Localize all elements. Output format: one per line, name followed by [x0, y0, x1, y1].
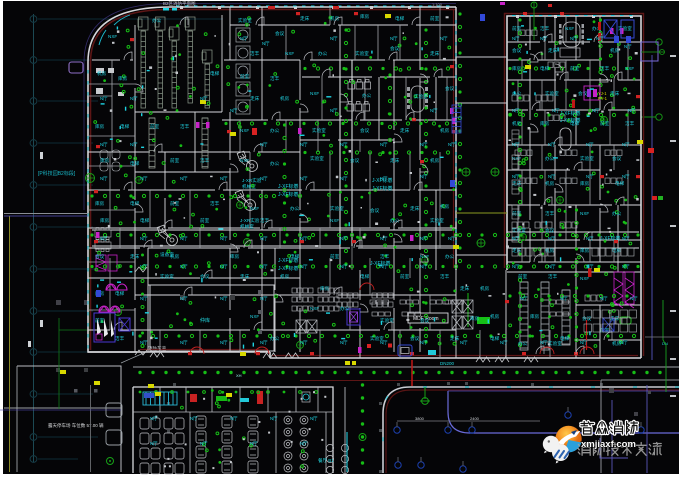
svg-text:N厅: N厅 — [630, 296, 638, 301]
svg-text:N厅: N厅 — [250, 441, 258, 446]
svg-text:N厅: N厅 — [624, 44, 632, 49]
svg-text:NXF: NXF — [565, 26, 574, 31]
svg-text:N厅: N厅 — [300, 176, 308, 181]
svg-text:N厅: N厅 — [622, 142, 630, 147]
svg-text:N厅: N厅 — [448, 236, 456, 241]
svg-text:N厅: N厅 — [140, 296, 148, 301]
svg-text:库房: 库房 — [530, 313, 540, 320]
svg-text:会议: 会议 — [410, 335, 420, 342]
svg-text:N厅: N厅 — [622, 174, 630, 179]
svg-text:N厅: N厅 — [622, 236, 630, 241]
svg-text:实验室: 实验室 — [355, 50, 369, 57]
svg-text:N厅: N厅 — [440, 36, 448, 41]
svg-text:N厅: N厅 — [100, 96, 108, 101]
svg-text:N厅: N厅 — [262, 41, 270, 46]
svg-text:N厅: N厅 — [586, 236, 594, 241]
svg-text:办公: 办公 — [445, 253, 455, 260]
svg-text:N厅: N厅 — [380, 142, 388, 147]
svg-text:走床: 走床 — [130, 253, 140, 260]
svg-text:会议: 会议 — [545, 227, 555, 234]
svg-text:N厅: N厅 — [300, 264, 308, 269]
svg-text:N厅: N厅 — [100, 176, 108, 181]
svg-text:办公: 办公 — [340, 305, 350, 312]
svg-text:会议: 会议 — [275, 30, 285, 37]
svg-text:N厅: N厅 — [512, 174, 520, 179]
svg-text:机房: 机房 — [170, 253, 180, 260]
svg-text:NXF: NXF — [625, 66, 634, 71]
svg-text:洁丰: 洁丰 — [600, 65, 610, 72]
svg-text:库房: 库房 — [470, 315, 480, 322]
svg-text:N厅: N厅 — [180, 340, 188, 345]
svg-text:电梯: 电梯 — [120, 123, 130, 130]
svg-text:办公: 办公 — [512, 90, 522, 97]
svg-text:J-XR实验: J-XR实验 — [242, 177, 262, 184]
svg-text:N厅: N厅 — [140, 340, 148, 345]
svg-text:前室: 前室 — [512, 210, 522, 217]
svg-text:机房: 机房 — [480, 285, 490, 292]
svg-text:机房: 机房 — [440, 127, 450, 134]
svg-text:NXF: NXF — [240, 158, 249, 163]
svg-text:电梯: 电梯 — [615, 180, 625, 187]
svg-text:实验室: 实验室 — [238, 17, 252, 24]
svg-text:办公: 办公 — [290, 205, 300, 212]
svg-text:N厅: N厅 — [596, 36, 604, 41]
svg-text:N厅: N厅 — [260, 296, 268, 301]
svg-text:2400: 2400 — [470, 416, 480, 421]
svg-text:N厅: N厅 — [300, 236, 308, 241]
svg-text:XH: XH — [236, 373, 242, 378]
svg-text:N厅: N厅 — [130, 142, 138, 147]
svg-text:露天停车场 车位数 57.00 辆: 露天停车场 车位数 57.00 辆 — [48, 422, 104, 429]
svg-text:N厅: N厅 — [200, 441, 208, 446]
svg-text:DN200: DN200 — [440, 361, 455, 366]
svg-text:N厅: N厅 — [600, 296, 608, 301]
svg-text:办公: 办公 — [612, 210, 622, 217]
svg-text:洁丰: 洁丰 — [200, 157, 210, 164]
svg-text:N厅: N厅 — [540, 340, 548, 345]
svg-text:N厅: N厅 — [260, 176, 268, 181]
svg-text:会议: 会议 — [420, 317, 430, 324]
svg-text:机房: 机房 — [545, 180, 555, 187]
svg-text:走床: 走床 — [250, 95, 260, 102]
svg-text:J-XF标碁: J-XF标碁 — [278, 257, 299, 264]
svg-text:N厅: N厅 — [340, 176, 348, 181]
svg-text:走床: 走床 — [460, 285, 470, 292]
svg-text:N厅: N厅 — [260, 236, 268, 241]
svg-text:N厅: N厅 — [240, 36, 248, 41]
svg-text:N厅: N厅 — [586, 264, 594, 269]
svg-text:库房: 库房 — [320, 285, 330, 292]
svg-text:N厅: N厅 — [512, 236, 520, 241]
svg-text:N厅: N厅 — [180, 264, 188, 269]
svg-text:PY-1: PY-1 — [598, 96, 608, 101]
svg-text:走床: 走床 — [410, 205, 420, 212]
svg-text:N厅: N厅 — [420, 340, 428, 345]
svg-text:库房: 库房 — [540, 120, 550, 127]
svg-text:会议: 会议 — [95, 253, 105, 260]
svg-text:NXF: NXF — [310, 91, 319, 96]
svg-text:实验室: 实验室 — [545, 90, 559, 97]
svg-text:N厅: N厅 — [620, 340, 628, 345]
svg-text:N厅: N厅 — [150, 416, 158, 421]
svg-text:NXF: NXF — [250, 206, 259, 211]
svg-text:会议: 会议 — [578, 90, 588, 97]
svg-text:NXF: NXF — [250, 314, 259, 319]
svg-text:N厅: N厅 — [570, 36, 578, 41]
svg-text:会议: 会议 — [360, 127, 370, 134]
svg-text:前室: 前室 — [600, 120, 610, 127]
svg-text:[P科技园B2标段]: [P科技园B2标段] — [38, 170, 76, 177]
svg-text:洁丰: 洁丰 — [270, 75, 280, 82]
svg-text:机房: 机房 — [610, 47, 620, 54]
svg-text:N厅: N厅 — [230, 416, 238, 421]
svg-text:实验室: 实验室 — [548, 340, 562, 347]
svg-text:N厅: N厅 — [140, 176, 148, 181]
svg-text:N厅: N厅 — [380, 340, 388, 345]
svg-text:N厅: N厅 — [548, 142, 556, 147]
svg-text:办公: 办公 — [270, 127, 280, 134]
svg-text:前室: 前室 — [240, 73, 250, 80]
svg-text:N厅: N厅 — [380, 176, 388, 181]
svg-text:前室: 前室 — [518, 273, 528, 280]
svg-text:库房: 库房 — [95, 200, 105, 207]
svg-text:走床: 走床 — [548, 47, 558, 54]
svg-text:N厅: N厅 — [622, 264, 630, 269]
svg-text:N厅: N厅 — [200, 96, 208, 101]
svg-text:办公: 办公 — [270, 160, 280, 167]
svg-text:N厅: N厅 — [580, 340, 588, 345]
svg-text:N厅: N厅 — [586, 142, 594, 147]
svg-text:办公: 办公 — [362, 92, 372, 99]
svg-text:走床: 走床 — [430, 50, 440, 57]
svg-text:N厅: N厅 — [512, 36, 520, 41]
svg-text:洁丰: 洁丰 — [180, 123, 190, 130]
svg-text:N厅: N厅 — [448, 142, 456, 147]
svg-text:走床: 走床 — [390, 157, 400, 164]
svg-text:J-XF标碁: J-XF标碁 — [560, 110, 581, 117]
svg-text:N厅: N厅 — [260, 340, 268, 345]
svg-text:N厅: N厅 — [420, 174, 428, 179]
svg-text:N厅: N厅 — [330, 36, 338, 41]
svg-text:电梯: 电梯 — [140, 217, 150, 224]
svg-text:N厅: N厅 — [540, 36, 548, 41]
svg-text:前室: 前室 — [170, 157, 180, 164]
svg-text:洁丰: 洁丰 — [540, 25, 550, 32]
svg-text:前室: 前室 — [330, 253, 340, 260]
svg-text:走床: 走床 — [512, 180, 522, 187]
svg-text:会议: 会议 — [350, 157, 360, 164]
svg-text:洁丰: 洁丰 — [250, 50, 260, 57]
svg-text:NXF: NXF — [240, 128, 249, 133]
svg-text:库房: 库房 — [360, 13, 370, 20]
svg-text:前室: 前室 — [512, 25, 522, 32]
svg-text:N厅: N厅 — [100, 236, 108, 241]
svg-text:机房: 机房 — [430, 157, 440, 164]
svg-text:NXF: NXF — [420, 254, 429, 259]
svg-text:仲库: 仲库 — [200, 317, 210, 324]
svg-text:J-XF标碁: J-XF标碁 — [560, 117, 581, 124]
svg-text:走床: 走床 — [300, 15, 310, 22]
svg-text:库房: 库房 — [100, 157, 110, 164]
svg-text:机房: 机房 — [440, 203, 450, 210]
svg-text:N厅: N厅 — [430, 108, 438, 113]
svg-text:实验室: 实验室 — [414, 93, 428, 100]
svg-text:办公: 办公 — [318, 50, 328, 57]
svg-text:机房: 机房 — [512, 120, 522, 127]
svg-text:机房: 机房 — [490, 313, 500, 320]
svg-text:洁丰: 洁丰 — [545, 210, 555, 217]
svg-text:库房: 库房 — [512, 65, 522, 72]
svg-text:NXF: NXF — [580, 211, 589, 216]
svg-text:NXF: NXF — [310, 306, 319, 311]
svg-text:N厅: N厅 — [130, 96, 138, 101]
svg-text:N厅: N厅 — [180, 176, 188, 181]
svg-text:会议: 会议 — [390, 45, 400, 52]
svg-text:前室: 前室 — [95, 317, 105, 324]
svg-text:N厅: N厅 — [190, 416, 198, 421]
svg-text:1:100: 1:100 — [432, 2, 443, 7]
svg-text:库房: 库房 — [580, 180, 590, 187]
svg-text:N厅: N厅 — [520, 296, 528, 301]
svg-text:N厅: N厅 — [340, 340, 348, 345]
svg-text:电梯: 电梯 — [560, 335, 570, 342]
svg-text:N厅: N厅 — [220, 236, 228, 241]
svg-text:N厅: N厅 — [340, 236, 348, 241]
svg-text:电梯: 电梯 — [115, 290, 125, 297]
svg-text:N厅: N厅 — [420, 264, 428, 269]
svg-text:N厅: N厅 — [548, 236, 556, 241]
svg-text:N厅: N厅 — [300, 142, 308, 147]
svg-text:会议: 会议 — [445, 85, 455, 92]
svg-text:餐厅 B1: 餐厅 B1 — [318, 457, 334, 464]
svg-text:N厅: N厅 — [220, 296, 228, 301]
svg-text:N厅: N厅 — [220, 176, 228, 181]
svg-text:电梯: 电梯 — [360, 273, 370, 280]
svg-text:xmjiaxf.com: xmjiaxf.com — [581, 439, 636, 450]
svg-text:N厅: N厅 — [270, 416, 278, 421]
svg-text:库房: 库房 — [230, 253, 240, 260]
svg-text:3800: 3800 — [415, 416, 425, 421]
svg-text:N厅: N厅 — [100, 142, 108, 147]
svg-text:前室: 前室 — [430, 15, 440, 22]
svg-text:办公: 办公 — [152, 17, 162, 24]
svg-text:会议: 会议 — [512, 47, 522, 54]
svg-text:N厅: N厅 — [512, 108, 520, 113]
svg-text:N厅: N厅 — [628, 108, 636, 113]
svg-text:N厅: N厅 — [330, 108, 338, 113]
svg-text:N厅: N厅 — [420, 236, 428, 241]
svg-text:N厅: N厅 — [460, 340, 468, 345]
svg-text:走床: 走床 — [450, 335, 460, 342]
svg-text:N厅: N厅 — [260, 264, 268, 269]
svg-text:N厅: N厅 — [420, 142, 428, 147]
svg-text:实验室: 实验室 — [310, 155, 324, 162]
svg-text:J-XF标碁: J-XF标碁 — [278, 265, 299, 272]
svg-text:电梯: 电梯 — [540, 65, 550, 72]
svg-text:N厅: N厅 — [300, 441, 308, 446]
svg-text:前室: 前室 — [150, 123, 160, 130]
svg-text:实验室: 实验室 — [160, 273, 174, 280]
svg-text:前室: 前室 — [400, 273, 410, 280]
svg-text:洁丰: 洁丰 — [210, 200, 220, 207]
svg-text:N厅: N厅 — [300, 340, 308, 345]
svg-text:N厅: N厅 — [560, 296, 568, 301]
svg-text:洁丰: 洁丰 — [260, 217, 270, 224]
svg-text:前室: 前室 — [570, 65, 580, 72]
svg-text:实验室: 实验室 — [430, 217, 444, 224]
svg-text:会议: 会议 — [612, 155, 622, 162]
svg-text:电梯: 电梯 — [395, 15, 405, 22]
svg-text:洁丰: 洁丰 — [625, 120, 635, 127]
svg-text:B2区消防平面图: B2区消防平面图 — [163, 0, 196, 7]
svg-text:库房: 库房 — [118, 75, 128, 82]
svg-text:N厅: N厅 — [548, 264, 556, 269]
svg-text:NXF: NXF — [285, 51, 294, 56]
svg-text:N厅: N厅 — [552, 108, 560, 113]
svg-text:电梯: 电梯 — [210, 70, 220, 77]
svg-text:N厅: N厅 — [592, 108, 600, 113]
svg-text:J-XF标碁: J-XF标碁 — [278, 191, 299, 198]
svg-text:洁丰: 洁丰 — [380, 253, 390, 260]
svg-text:N厅: N厅 — [512, 142, 520, 147]
svg-text:N厅: N厅 — [150, 441, 158, 446]
svg-text:电梯: 电梯 — [490, 335, 500, 342]
svg-text:实验室: 实验室 — [580, 155, 594, 162]
svg-text:电梯: 电梯 — [130, 200, 140, 207]
svg-text:N厅: N厅 — [310, 416, 318, 421]
svg-text:N厅: N厅 — [500, 340, 508, 345]
svg-text:N厅: N厅 — [340, 142, 348, 147]
svg-text:NXF: NXF — [512, 156, 521, 161]
svg-text:办公: 办公 — [270, 335, 280, 342]
svg-text:N厅: N厅 — [180, 236, 188, 241]
svg-text:机房: 机房 — [97, 70, 107, 77]
svg-text:N厅: N厅 — [548, 174, 556, 179]
svg-text:洁丰: 洁丰 — [548, 273, 558, 280]
svg-text:N厅: N厅 — [512, 264, 520, 269]
svg-text:实验室: 实验室 — [330, 205, 344, 212]
svg-text:N厅: N厅 — [220, 340, 228, 345]
svg-text:J-XF标碁: J-XF标碁 — [278, 183, 299, 190]
svg-text:库房: 库房 — [100, 217, 110, 224]
svg-text:电梯: 电梯 — [130, 160, 140, 167]
svg-text:走床: 走床 — [400, 127, 410, 134]
svg-text:NXF: NXF — [580, 276, 589, 281]
svg-text:办公: 办公 — [518, 340, 528, 347]
svg-text:机房: 机房 — [280, 95, 290, 102]
svg-text:N厅: N厅 — [586, 174, 594, 179]
svg-text:NXF: NXF — [108, 34, 117, 39]
svg-text:机械室: 机械室 — [240, 223, 254, 230]
svg-text:库房: 库房 — [580, 247, 590, 254]
svg-text:办公: 办公 — [390, 217, 400, 224]
svg-text:N厅: N厅 — [140, 236, 148, 241]
svg-text:机房: 机房 — [280, 273, 290, 280]
svg-text:N厅: N厅 — [390, 36, 398, 41]
svg-text:J-XF标碁: J-XF标碁 — [372, 185, 393, 192]
svg-text:洁丰: 洁丰 — [115, 335, 125, 342]
svg-text:J-XR实验: J-XR实验 — [240, 217, 260, 224]
svg-text:前室: 前室 — [200, 217, 210, 224]
svg-text:N厅: N厅 — [180, 296, 188, 301]
svg-text:洁丰: 洁丰 — [440, 273, 450, 280]
svg-text:走床: 走床 — [610, 90, 620, 97]
svg-text:N厅: N厅 — [380, 236, 388, 241]
svg-text:N厅: N厅 — [230, 108, 238, 113]
svg-text:N厅: N厅 — [260, 142, 268, 147]
svg-text:N厅: N厅 — [340, 264, 348, 269]
svg-text:库房: 库房 — [95, 123, 105, 130]
svg-text:N厅: N厅 — [220, 264, 228, 269]
svg-text:会议: 会议 — [370, 207, 380, 214]
svg-text:实验室: 实验室 — [312, 127, 326, 134]
svg-text:走床: 走床 — [240, 273, 250, 280]
svg-text:NXF: NXF — [330, 218, 339, 223]
